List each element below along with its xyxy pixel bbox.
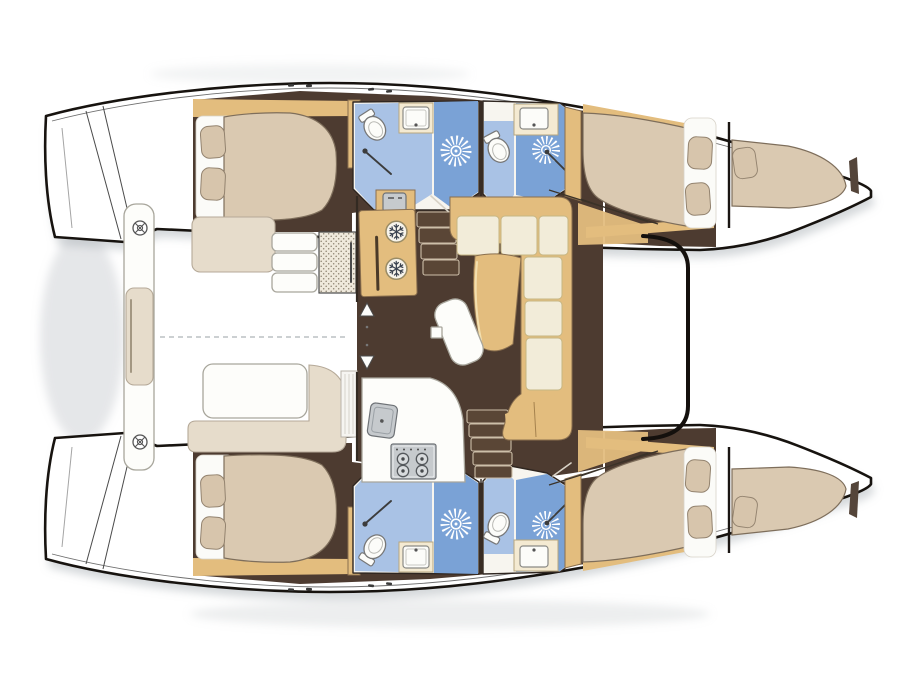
table-leg-mount	[431, 327, 442, 338]
port-forward-cabin-pillow-2	[685, 182, 711, 216]
boat-floor-plan-page	[0, 0, 900, 675]
stove	[391, 444, 436, 479]
cockpit-steps	[272, 233, 317, 292]
starboard-aft-cabin-pillow-2	[200, 474, 226, 507]
port-bow-berth-pillow	[732, 146, 759, 179]
port-aft-cabin-pillow-1	[200, 125, 226, 159]
starboard-aft-cabin-pillow-1	[200, 516, 226, 550]
port-aft-head	[353, 101, 481, 213]
starboard-forward-cabin-pillow-1	[687, 505, 713, 538]
stove-burner-1	[397, 453, 408, 464]
stove-burner-3	[397, 465, 408, 476]
sliding-door-folded	[341, 371, 357, 437]
deck-hatch-port-icon	[133, 221, 147, 235]
port-aft-cabin-pillow-2	[200, 167, 226, 200]
aft-cockpit	[124, 204, 357, 470]
starboard-forward-head	[481, 463, 572, 574]
port-aft-head-shower	[434, 101, 478, 209]
cockpit-side-bench	[192, 217, 275, 272]
stove-burner-4	[416, 465, 427, 476]
port-forward-head-basin-drain	[532, 123, 535, 126]
port-aft-cabin-bed	[224, 113, 336, 221]
port-forward-cabin-pillow-1	[687, 136, 713, 169]
forward-crossbeam	[643, 236, 688, 439]
starboard-aft-head-basin-drain	[414, 548, 417, 551]
boat-floor-plan	[0, 0, 900, 675]
starboard-forward-wardrobe	[565, 474, 581, 568]
cockpit-table	[203, 364, 307, 418]
deck-hatch-starboard-icon	[133, 435, 147, 449]
starboard-forward-head-basin-drain	[532, 548, 535, 551]
port-forward-head	[481, 101, 572, 212]
cockpit-storage-locker	[319, 232, 356, 293]
stove-burner-2	[416, 453, 427, 464]
galley-sink	[367, 402, 398, 438]
fridge-cabinet	[359, 209, 417, 296]
starboard-forward-cabin-pillow-2	[685, 459, 711, 493]
port-aft-head-basin-drain	[414, 123, 417, 126]
port-forward-wardrobe	[565, 107, 581, 201]
starboard-aft-cabin-bed	[224, 455, 336, 563]
starboard-bow-berth-pillow	[732, 495, 759, 528]
